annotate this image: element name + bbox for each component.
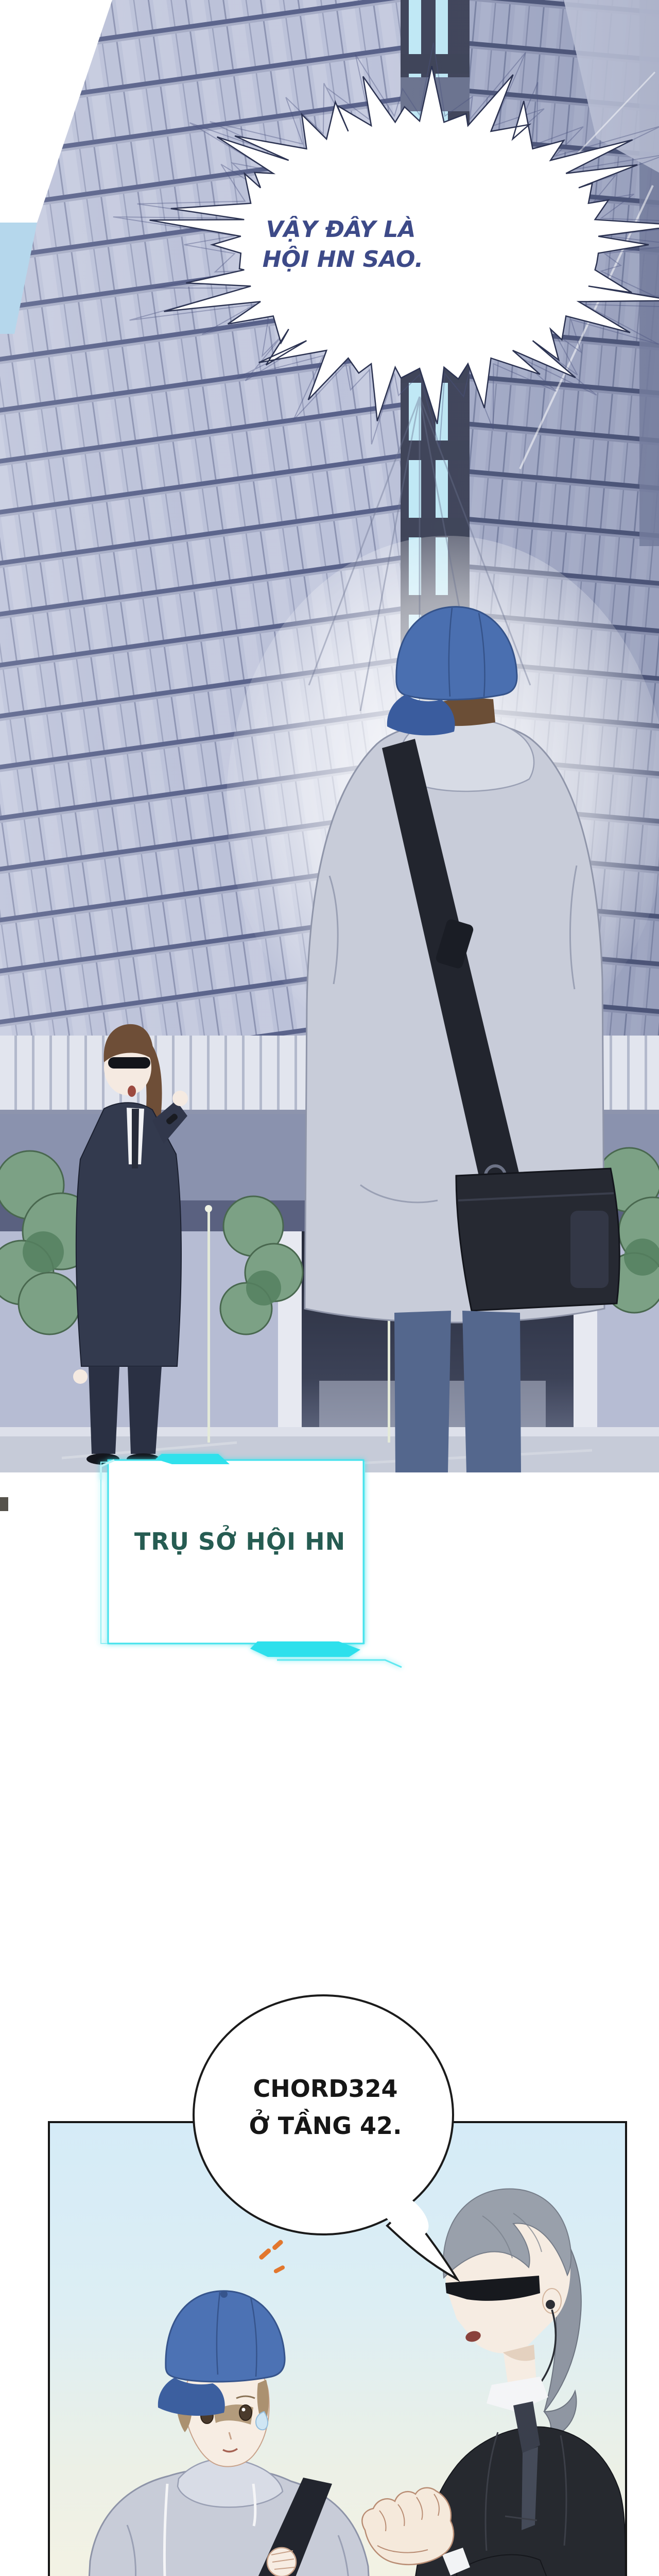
bubble2-line-2: Ở TẦNG 42. (249, 2109, 402, 2140)
bubble2-line-1: CHORD324 (253, 2075, 398, 2103)
capped-man-figure (86, 2291, 372, 2576)
speech-bubble-floor-info: CHORD324 Ở TẦNG 42. (185, 1988, 474, 2297)
caption-text: TRỤ SỞ HỘI HN (134, 1525, 345, 1555)
caption-accent-bottom (250, 1641, 360, 1657)
location-caption-box: TRỤ SỞ HỘI HN (97, 1449, 406, 1670)
blue-cap (166, 2291, 285, 2382)
building-scene-art: VẬY ĐÂY LÀ HỘI HN SAO. (0, 0, 659, 1472)
earpiece-icon (546, 2300, 555, 2309)
page-edge-tab (0, 1497, 8, 1511)
panel-building-exterior: VẬY ĐÂY LÀ HỘI HN SAO. (0, 0, 659, 1472)
burst-line-1: VẬY ĐÂY LÀ (266, 215, 416, 243)
caption-echo-line (277, 1660, 402, 1667)
burst-line-2: HỘI HN SAO. (263, 245, 423, 273)
sunglasses-icon (108, 1057, 150, 1069)
webtoon-page: VẬY ĐÂY LÀ HỘI HN SAO. TRỤ SỞ HỘI HN (0, 0, 659, 2576)
